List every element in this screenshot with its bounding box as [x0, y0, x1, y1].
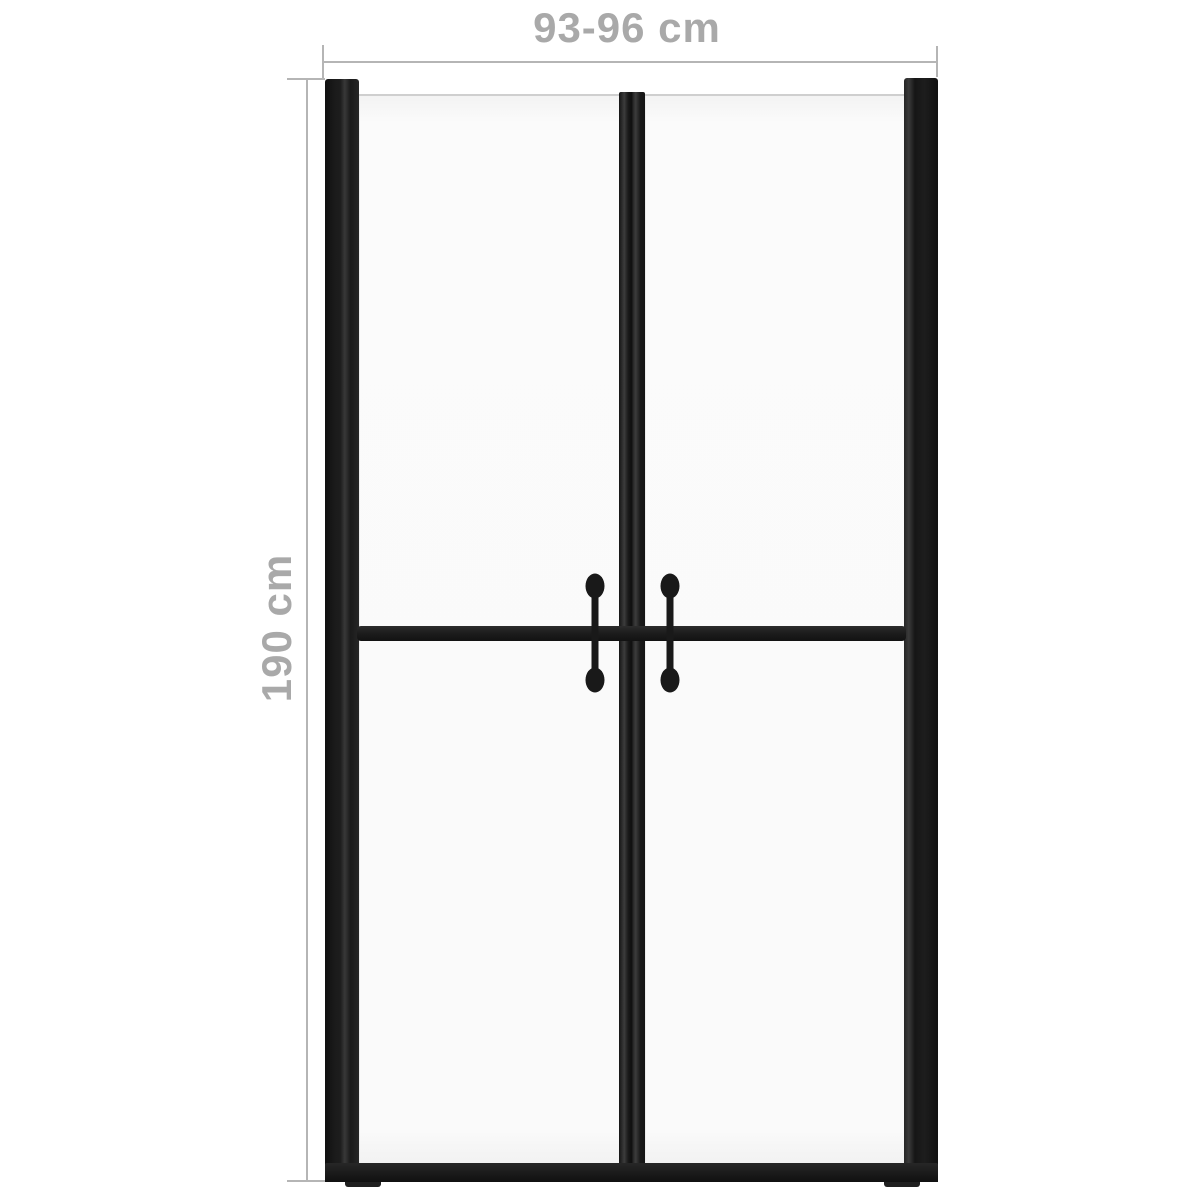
right-frame-post — [904, 78, 938, 1182]
right-door-handle-icon — [661, 574, 680, 693]
width-dimension-tick-left — [322, 45, 324, 80]
width-dimension-line — [323, 61, 938, 63]
door-handles — [570, 560, 685, 700]
height-dimension-line — [306, 79, 308, 1182]
left-door-handle-icon — [586, 574, 605, 693]
bottom-rail — [325, 1163, 938, 1182]
height-dimension-tick-top — [287, 78, 325, 80]
width-dimension-label: 93-96 cm — [427, 2, 827, 54]
shower-door-dimension-diagram: 93-96 cm 190 cm — [0, 0, 1200, 1200]
width-dimension-tick-right — [936, 46, 938, 77]
height-dimension-tick-bottom — [287, 1180, 325, 1182]
height-dimension-label: 190 cm — [253, 518, 301, 738]
left-frame-post — [325, 79, 359, 1182]
